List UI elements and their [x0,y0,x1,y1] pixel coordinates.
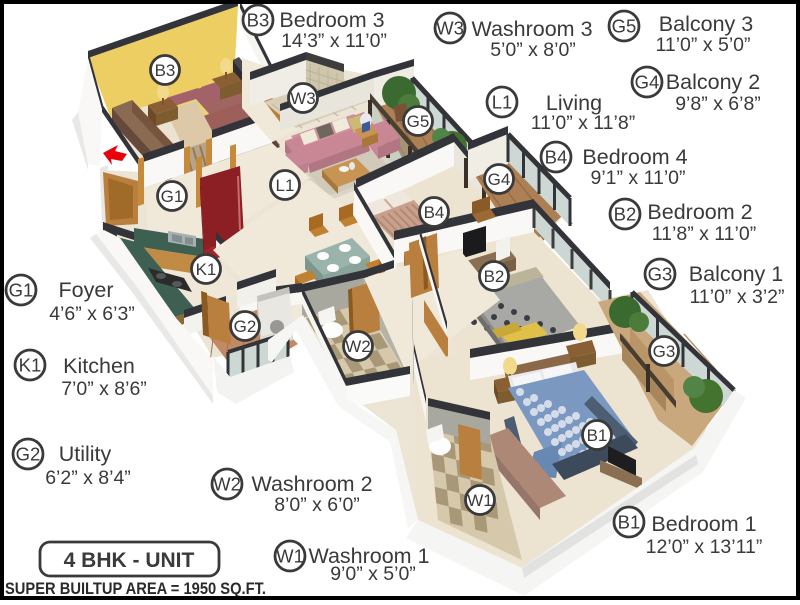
svg-text:Bedroom 3: Bedroom 3 [279,8,384,32]
svg-text:G2: G2 [234,317,257,336]
svg-text:7’0” x 8’6”: 7’0” x 8’6” [61,378,147,400]
svg-text:B2: B2 [614,203,637,224]
svg-text:G5: G5 [612,15,637,36]
svg-text:G2: G2 [16,443,41,464]
svg-text:12’0” x 13’11”: 12’0” x 13’11” [646,536,763,558]
svg-text:Utility: Utility [59,442,112,466]
svg-text:G5: G5 [407,112,430,131]
svg-text:11’0” x 3’2”: 11’0” x 3’2” [689,286,784,308]
svg-text:11’0” x 11’8”: 11’0” x 11’8” [531,112,635,134]
svg-text:G4: G4 [635,71,660,92]
svg-text:G4: G4 [488,170,511,189]
svg-text:9’1” x 11’0”: 9’1” x 11’0” [590,167,685,189]
svg-text:W1: W1 [467,491,493,510]
svg-text:5’0” x 8’0”: 5’0” x 8’0” [490,39,576,61]
svg-text:Bedroom 2: Bedroom 2 [647,200,752,224]
svg-text:B3: B3 [247,9,270,30]
svg-text:W2: W2 [213,473,241,494]
svg-text:K1: K1 [196,260,217,279]
svg-text:11’0” x 5’0”: 11’0” x 5’0” [655,34,750,56]
svg-text:B4: B4 [545,146,568,167]
svg-text:L1: L1 [492,91,513,112]
svg-text:4 BHK - UNIT: 4 BHK - UNIT [64,549,195,572]
svg-text:Balcony 3: Balcony 3 [659,12,753,36]
svg-text:B2: B2 [484,267,505,286]
svg-text:L1: L1 [276,176,295,195]
svg-text:8’0” x 6’0”: 8’0” x 6’0” [274,494,360,516]
svg-text:Foyer: Foyer [59,278,114,302]
svg-text:B3: B3 [155,61,176,80]
svg-text:B1: B1 [587,426,608,445]
svg-text:W1: W1 [276,545,304,566]
svg-text:B1: B1 [618,511,641,532]
svg-text:9’0” x 5’0”: 9’0” x 5’0” [330,563,416,585]
svg-text:Washroom 3: Washroom 3 [471,17,592,41]
svg-text:W3: W3 [436,17,464,38]
svg-text:W2: W2 [345,337,371,356]
svg-text:G3: G3 [653,342,676,361]
svg-text:B4: B4 [424,203,445,222]
svg-text:W3: W3 [290,89,316,108]
svg-text:9’8” x 6’8”: 9’8” x 6’8” [675,93,761,115]
svg-text:Balcony 2: Balcony 2 [666,70,760,94]
svg-text:Bedroom 4: Bedroom 4 [582,145,687,169]
svg-text:14’3” x 11’0”: 14’3” x 11’0” [281,30,387,52]
svg-text:Washroom 2: Washroom 2 [251,472,372,496]
svg-text:G1: G1 [161,187,184,206]
svg-text:K1: K1 [19,354,42,375]
svg-text:6’2” x 8’4”: 6’2” x 8’4” [45,467,131,489]
svg-text:G1: G1 [9,279,34,300]
svg-text:G3: G3 [648,263,673,284]
svg-text:Kitchen: Kitchen [63,354,135,378]
svg-text:Bedroom 1: Bedroom 1 [651,512,756,536]
svg-text:Balcony 1: Balcony 1 [689,262,783,286]
svg-text:SUPER BUILTUP AREA = 1950 SQ.F: SUPER BUILTUP AREA = 1950 SQ.FT. [5,579,266,598]
svg-text:4’6” x 6’3”: 4’6” x 6’3” [49,303,135,325]
svg-text:11’8” x 11’0”: 11’8” x 11’0” [652,223,756,245]
